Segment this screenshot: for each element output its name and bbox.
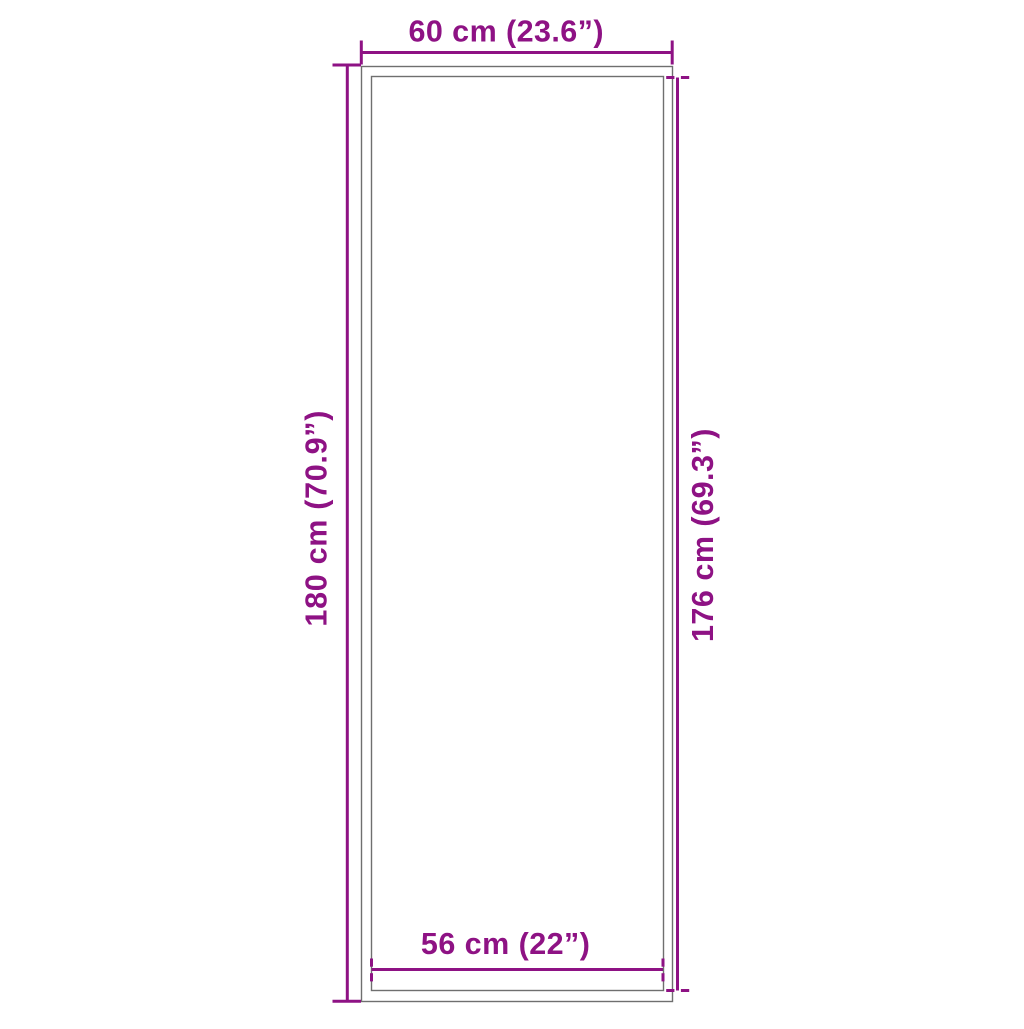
svg-text:180 cm (70.9”): 180 cm (70.9”) [300, 411, 334, 627]
svg-text:56 cm (22”): 56 cm (22”) [421, 927, 590, 961]
svg-text:176 cm (69.3”): 176 cm (69.3”) [686, 429, 720, 643]
svg-text:60 cm (23.6”): 60 cm (23.6”) [409, 14, 604, 48]
